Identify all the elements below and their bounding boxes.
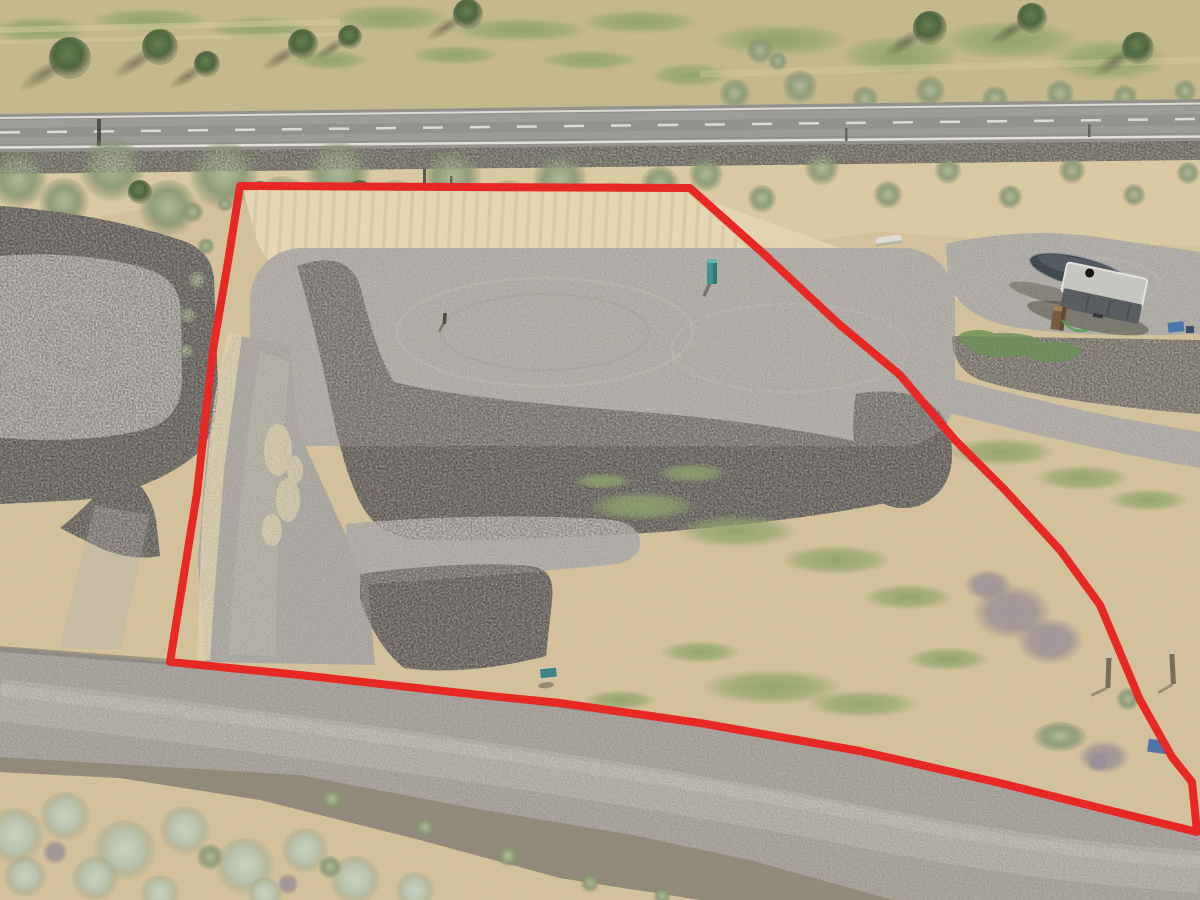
photo-grain bbox=[0, 0, 1200, 900]
aerial-photo: Aerial drone photograph of a graded vaca… bbox=[0, 0, 1200, 900]
aerial-photo-canvas: Aerial drone photograph of a graded vaca… bbox=[0, 0, 1200, 900]
